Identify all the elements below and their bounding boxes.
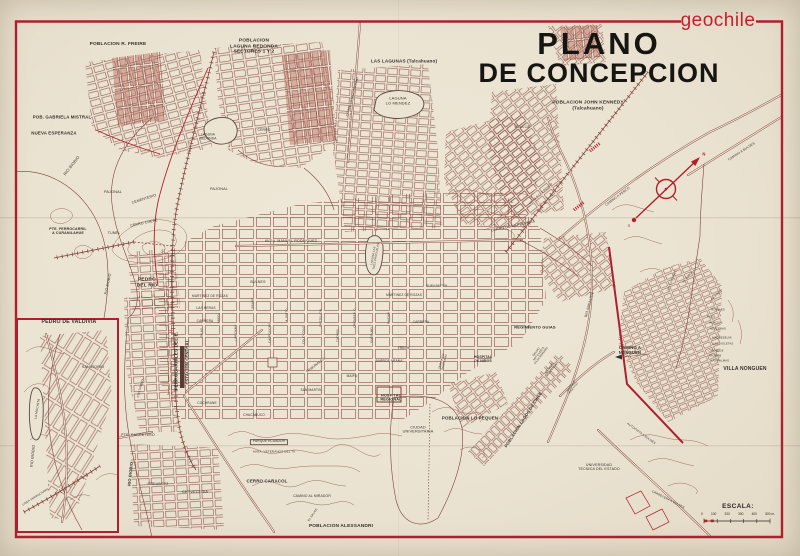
map-label-acacios: ACACIOS bbox=[709, 321, 722, 324]
map-label-san-martin: SAN MARTIN bbox=[300, 389, 321, 393]
map-label-villa-cap: VILLA CAP bbox=[514, 126, 531, 130]
map-label-madreselva: MADRESELVA bbox=[712, 336, 731, 339]
map-label-martinez-de-rozas-e: MARTINEZ DE ROZAS bbox=[386, 294, 422, 298]
map-label-laguna-lo-mendez: LAGUNA LO MENDEZ bbox=[386, 96, 411, 105]
map-label-laguna-redonda-small: LAGUNA REDONDA bbox=[200, 133, 217, 140]
map-label-poblacion-john-kennedy: POBLACION JOHN KENNEDY (Talcahuano) bbox=[552, 100, 624, 111]
map-label-poblacion-laguna-redonda: POBLACION LAGUNA REDONDA SECTORES 1 Y 2 bbox=[230, 39, 278, 56]
map-label-barros-arana: BARROS ARANA bbox=[376, 360, 403, 364]
map-label-compass-s: S bbox=[628, 224, 631, 228]
map-label-caupolican: CAUPOLICAN bbox=[268, 323, 271, 343]
map-label-martinez-de-rozas-w: MARTINEZ DE ROZAS bbox=[192, 295, 228, 299]
map-label-pajonal-c: PAJONAL bbox=[210, 187, 228, 191]
map-label-salas: SALAS bbox=[200, 328, 203, 338]
map-label-hospital-regional: HOSPITAL REGIONAL bbox=[380, 394, 401, 403]
title-line2: DE CONCEPCION bbox=[440, 59, 758, 89]
map-label-parque-ecuador: PARQUE ECUADOR bbox=[250, 439, 288, 445]
map-label-hospital-de-ninos: HOSPITAL DE NIÑOS bbox=[474, 356, 492, 364]
map-label-carrera-e: CARRERA bbox=[413, 321, 430, 325]
scale-mark-4: 400 bbox=[752, 512, 757, 516]
map-label-avda-veteranos: AVDA. VETERANOS DEL 79 bbox=[253, 450, 295, 453]
scale-mark-0: 0 bbox=[701, 512, 703, 516]
map-label-angol: ANGOL bbox=[217, 313, 220, 324]
map-label-pedro-de-valdivia-title: PEDRO DE VALDIVIA bbox=[42, 320, 97, 326]
map-label-azucenas: AZUCENAS bbox=[710, 327, 726, 330]
map-label-colo-colo: COLO COLO bbox=[302, 326, 305, 344]
map-label-ferrocarriles-del-e: FERROCARRILES DEL E. bbox=[173, 332, 178, 391]
map-label-castellon: CASTELLON bbox=[319, 309, 322, 327]
map-label-cerro-caracol: CERRO CARACOL bbox=[247, 478, 288, 483]
map-label-camino-a-nonguen: CAMINO A NONGUEN bbox=[619, 346, 641, 356]
scale-mark-2: 200 bbox=[725, 512, 730, 516]
map-label-lincoyan: LINCOYAN bbox=[234, 325, 237, 340]
district-east-cluster bbox=[540, 232, 616, 302]
map-label-ciruelos: CIRUELOS bbox=[709, 349, 724, 352]
map-label-a-pinto: A. PINTO bbox=[285, 308, 288, 321]
map-label-ongolmo: ONGOLMO bbox=[370, 327, 373, 343]
scale-mark-1: 100 bbox=[711, 512, 716, 516]
map-label-aromos: AROMOS bbox=[709, 354, 722, 357]
map-label-sanatorio: SANATORIO bbox=[82, 365, 104, 369]
map-label-camino-al-mirador: CAMINO AL MIRADOR bbox=[293, 495, 331, 499]
map-label-tilos: TILOS bbox=[707, 315, 716, 318]
scale-label: ESCALA: bbox=[698, 503, 778, 510]
map-label-rosales: ROSALES bbox=[711, 308, 725, 311]
map-label-maipu: MAIPU bbox=[347, 375, 358, 379]
map-label-fernandez: FERNANDEZ bbox=[148, 483, 169, 487]
map-label-pajonal-w: PAJONAL bbox=[104, 190, 122, 194]
district-freire-filled bbox=[112, 52, 166, 126]
map-label-estacion-central: ESTACION CENTRAL bbox=[186, 340, 191, 385]
map-label-pob-gabriela-mistral: POB. GABRIELA MISTRAL bbox=[33, 114, 92, 119]
map-label-tucapel: TUCAPEL bbox=[336, 328, 339, 342]
scale-mark-3: 300 bbox=[738, 512, 743, 516]
plaza-block bbox=[268, 358, 277, 367]
map-label-poblacion-alessandri: POBLACION ALESSANDRI bbox=[309, 524, 373, 530]
map-title: PLANO DE CONCEPCION bbox=[440, 28, 758, 89]
map-label-orompello: OROMPELLO bbox=[353, 308, 356, 327]
map-label-paicavi: PAICAVI bbox=[387, 312, 390, 324]
map-label-pte-carretero: PTE. CARRETERO bbox=[121, 433, 155, 437]
map-label-tunel: TUNEL bbox=[108, 231, 121, 235]
map-label-chacabuco: CHACABUCO bbox=[243, 414, 265, 418]
map-label-freire-st: FREIRE bbox=[398, 347, 411, 351]
map-label-las-lagunas: LAS LAGUNAS (Talcahuano) bbox=[371, 58, 437, 63]
map-label-pedro-del-rio: PEDRO DEL RIO bbox=[137, 277, 157, 288]
map-label-compass-n: N bbox=[702, 153, 705, 158]
map-label-regimiento-guias: REGIMIENTO GUIAS bbox=[514, 326, 555, 331]
concepcion-map-poster: geochile PLANO DE CONCEPCION ESCALA: 0 1… bbox=[0, 0, 800, 556]
scale-bar bbox=[704, 519, 770, 524]
map-label-ciudad-universitaria: CIUDAD UNIVERSITARIA bbox=[403, 426, 434, 435]
map-label-buen-pastor: BUEN PASTOR bbox=[427, 284, 448, 287]
map-label-poblacion-lo-pequen: POBLACION LO PEQUEN bbox=[442, 415, 498, 420]
map-label-cerveceria: CERVECERIA bbox=[182, 490, 208, 494]
map-label-cerro: CERRO bbox=[258, 129, 271, 133]
map-label-poblacion-r-freire: POBLACION R. FREIRE bbox=[90, 42, 147, 48]
map-label-nueva-esperanza: NUEVA ESPERANZA bbox=[31, 130, 76, 135]
map-label-universidad-tecnica: UNIVERSIDAD TECNICA DEL ESTADO bbox=[578, 463, 620, 471]
map-label-cochrane: COCHRANE bbox=[197, 402, 216, 406]
map-label-rengo: RENGO bbox=[251, 297, 254, 308]
scale-mark-5: 500 m. bbox=[765, 512, 775, 516]
title-line1: PLANO bbox=[440, 28, 758, 59]
map-label-carrera-w: CARRERA bbox=[197, 320, 214, 324]
map-label-avda-manuel-rodriguez: AVDA. MANUEL RODRIGUEZ bbox=[265, 239, 317, 243]
district-redonda-filled bbox=[282, 50, 336, 145]
map-label-las-palmas: LAS PALMAS bbox=[711, 359, 729, 362]
map-label-bulnes: BULNES bbox=[250, 280, 265, 284]
compass-icon bbox=[632, 157, 700, 222]
district-bottom-left bbox=[130, 444, 224, 530]
scale-block: ESCALA: 0 100 200 300 400 500 m. bbox=[698, 503, 778, 516]
scale-marks: 0 100 200 300 400 500 m. bbox=[701, 512, 775, 516]
map-label-villa-nonguen: VILLA NONGUEN bbox=[723, 367, 766, 373]
map-label-las-heras: LAS HERAS bbox=[196, 307, 215, 311]
map-label-las-violetas: LAS VIOLETAS bbox=[713, 342, 734, 345]
map-label-pte-ferrocarril: PTE. FERROCARRIL A CURANILAHUE bbox=[49, 227, 87, 235]
